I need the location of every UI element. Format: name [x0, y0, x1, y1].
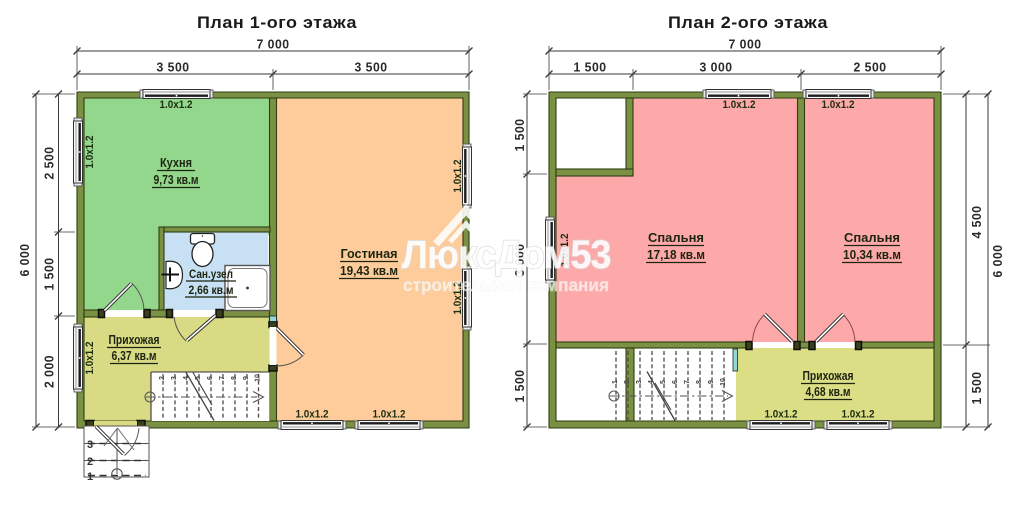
svg-text:строительная компания: строительная компания	[403, 275, 609, 295]
svg-text:6: 6	[672, 380, 679, 384]
svg-text:9,73 кв.м: 9,73 кв.м	[154, 172, 199, 187]
svg-text:1: 1	[87, 471, 93, 483]
svg-text:10,34 кв.м: 10,34 кв.м	[843, 247, 901, 262]
svg-text:2 000: 2 000	[43, 355, 57, 388]
svg-text:Прихожая: Прихожая	[803, 368, 854, 383]
svg-text:1.0х1.2: 1.0х1.2	[842, 409, 875, 421]
svg-text:7 000: 7 000	[729, 38, 762, 52]
svg-text:6 000: 6 000	[18, 244, 32, 277]
svg-text:2: 2	[87, 456, 93, 468]
svg-text:5: 5	[660, 380, 667, 384]
svg-text:3: 3	[171, 376, 178, 380]
svg-text:7: 7	[684, 380, 691, 384]
svg-text:6,37 кв.м: 6,37 кв.м	[112, 348, 157, 363]
svg-text:Гостиная: Гостиная	[341, 246, 398, 261]
svg-text:2: 2	[159, 376, 166, 380]
svg-text:План 2-ого этажа: План 2-ого этажа	[668, 13, 828, 32]
svg-text:Сан.узел: Сан.узел	[189, 269, 233, 281]
svg-text:8: 8	[231, 376, 238, 380]
svg-text:9: 9	[243, 376, 250, 380]
svg-text:1 500: 1 500	[574, 61, 607, 75]
svg-text:План 1-ого этажа: План 1-ого этажа	[197, 13, 357, 32]
svg-text:2: 2	[624, 380, 631, 384]
svg-text:Прихожая: Прихожая	[109, 332, 160, 347]
svg-text:4,68 кв.м: 4,68 кв.м	[806, 384, 851, 399]
svg-text:1.0х1.2: 1.0х1.2	[296, 409, 329, 421]
svg-text:1 500: 1 500	[43, 258, 57, 291]
svg-text:3 000: 3 000	[700, 61, 733, 75]
svg-text:2 500: 2 500	[43, 147, 57, 180]
svg-text:4 500: 4 500	[970, 206, 984, 239]
svg-text:1.0х1.2: 1.0х1.2	[84, 136, 96, 169]
svg-text:19,43 кв.м: 19,43 кв.м	[340, 263, 398, 278]
svg-text:Кухня: Кухня	[160, 155, 192, 170]
svg-text:3: 3	[636, 380, 643, 384]
svg-text:1.0х1.2: 1.0х1.2	[160, 99, 193, 111]
svg-text:1.0х1.2: 1.0х1.2	[84, 342, 96, 375]
svg-text:1.0х1.2: 1.0х1.2	[373, 409, 406, 421]
svg-text:8: 8	[696, 380, 703, 384]
svg-text:3 500: 3 500	[355, 61, 388, 75]
svg-text:10: 10	[255, 374, 262, 382]
svg-text:1 500: 1 500	[513, 370, 527, 403]
svg-text:Спальня: Спальня	[844, 230, 900, 245]
svg-text:1.0х1.2: 1.0х1.2	[822, 99, 855, 111]
svg-text:1.0х1.2: 1.0х1.2	[765, 409, 798, 421]
svg-text:1.0х1.2: 1.0х1.2	[452, 160, 464, 193]
svg-text:9: 9	[708, 380, 715, 384]
svg-text:7 000: 7 000	[257, 38, 290, 52]
svg-text:10: 10	[720, 378, 727, 386]
svg-text:2,66 кв.м: 2,66 кв.м	[189, 285, 234, 297]
svg-text:3 500: 3 500	[157, 61, 190, 75]
svg-text:2 500: 2 500	[854, 61, 887, 75]
svg-text:1 500: 1 500	[970, 372, 984, 405]
svg-text:1 500: 1 500	[513, 119, 527, 152]
svg-text:1.0х1.2: 1.0х1.2	[723, 99, 756, 111]
svg-text:6: 6	[207, 376, 214, 380]
svg-text:6 000: 6 000	[991, 245, 1005, 278]
svg-text:7: 7	[219, 376, 226, 380]
svg-text:ЛюксДом53: ЛюксДом53	[402, 233, 611, 277]
svg-text:3: 3	[87, 439, 93, 451]
svg-text:1: 1	[612, 380, 619, 384]
svg-text:17,18 кв.м: 17,18 кв.м	[647, 247, 705, 262]
svg-text:Спальня: Спальня	[648, 230, 704, 245]
